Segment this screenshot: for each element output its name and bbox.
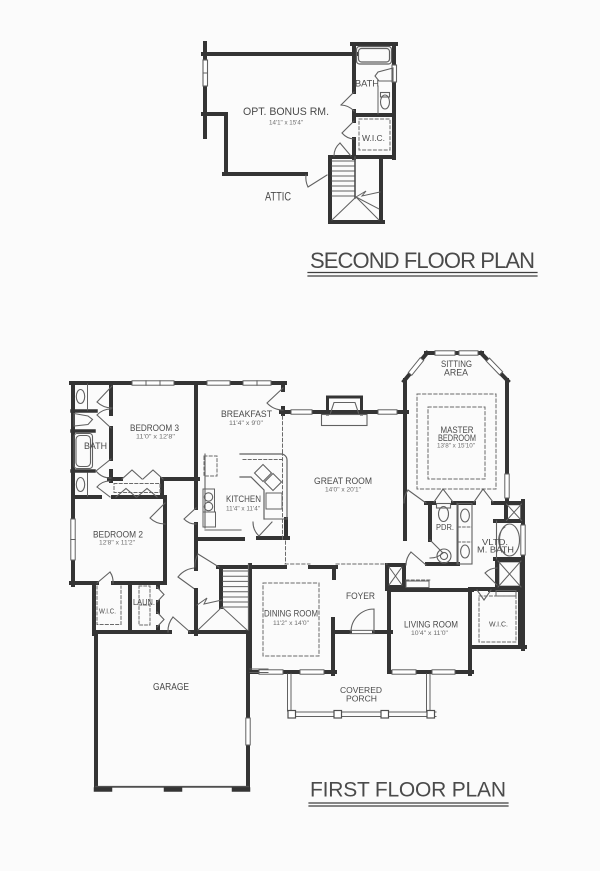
svg-text:LIVING ROOM: LIVING ROOM	[404, 620, 458, 631]
svg-text:BATH: BATH	[355, 79, 379, 90]
svg-text:PDR.: PDR.	[436, 522, 454, 532]
svg-text:KITCHEN: KITCHEN	[226, 494, 261, 504]
svg-text:ATTIC: ATTIC	[265, 192, 291, 204]
svg-text:11'0" x 12'8": 11'0" x 12'8"	[136, 434, 175, 441]
svg-text:BREAKFAST: BREAKFAST	[221, 409, 272, 420]
svg-text:14'0" x 20'1": 14'0" x 20'1"	[325, 487, 361, 494]
svg-text:W.I.C.: W.I.C.	[99, 607, 116, 616]
svg-text:11'2" x 14'0": 11'2" x 14'0"	[273, 620, 309, 627]
svg-text:W.I.C.: W.I.C.	[362, 133, 385, 143]
svg-text:12'8" x 11'2": 12'8" x 11'2"	[99, 540, 135, 547]
svg-text:LAUN.: LAUN.	[133, 598, 155, 607]
svg-text:10'4" x 11'0": 10'4" x 11'0"	[411, 630, 448, 637]
svg-text:SECOND FLOOR PLAN: SECOND FLOOR PLAN	[310, 248, 535, 273]
svg-text:14'1" x 15'4": 14'1" x 15'4"	[269, 120, 303, 127]
svg-text:PORCH: PORCH	[346, 694, 377, 704]
svg-text:OPT. BONUS RM.: OPT. BONUS RM.	[243, 106, 329, 118]
svg-text:GREAT ROOM: GREAT ROOM	[314, 476, 372, 487]
svg-text:W.I.C.: W.I.C.	[489, 620, 508, 629]
svg-text:FOYER: FOYER	[346, 591, 375, 602]
svg-text:GARAGE: GARAGE	[153, 681, 189, 693]
svg-text:13'8" x 15'10": 13'8" x 15'10"	[437, 443, 475, 450]
svg-text:BATH: BATH	[84, 441, 107, 452]
svg-text:11'4" x 9'0": 11'4" x 9'0"	[229, 420, 263, 427]
svg-text:11'4" x 11'4": 11'4" x 11'4"	[226, 506, 260, 513]
svg-text:M. BATH: M. BATH	[477, 546, 514, 555]
svg-text:AREA: AREA	[444, 368, 468, 378]
svg-text:FIRST FLOOR PLAN: FIRST FLOOR PLAN	[310, 779, 506, 802]
svg-text:DINING ROOM: DINING ROOM	[264, 609, 318, 620]
svg-text:BEDROOM 3: BEDROOM 3	[130, 423, 179, 434]
